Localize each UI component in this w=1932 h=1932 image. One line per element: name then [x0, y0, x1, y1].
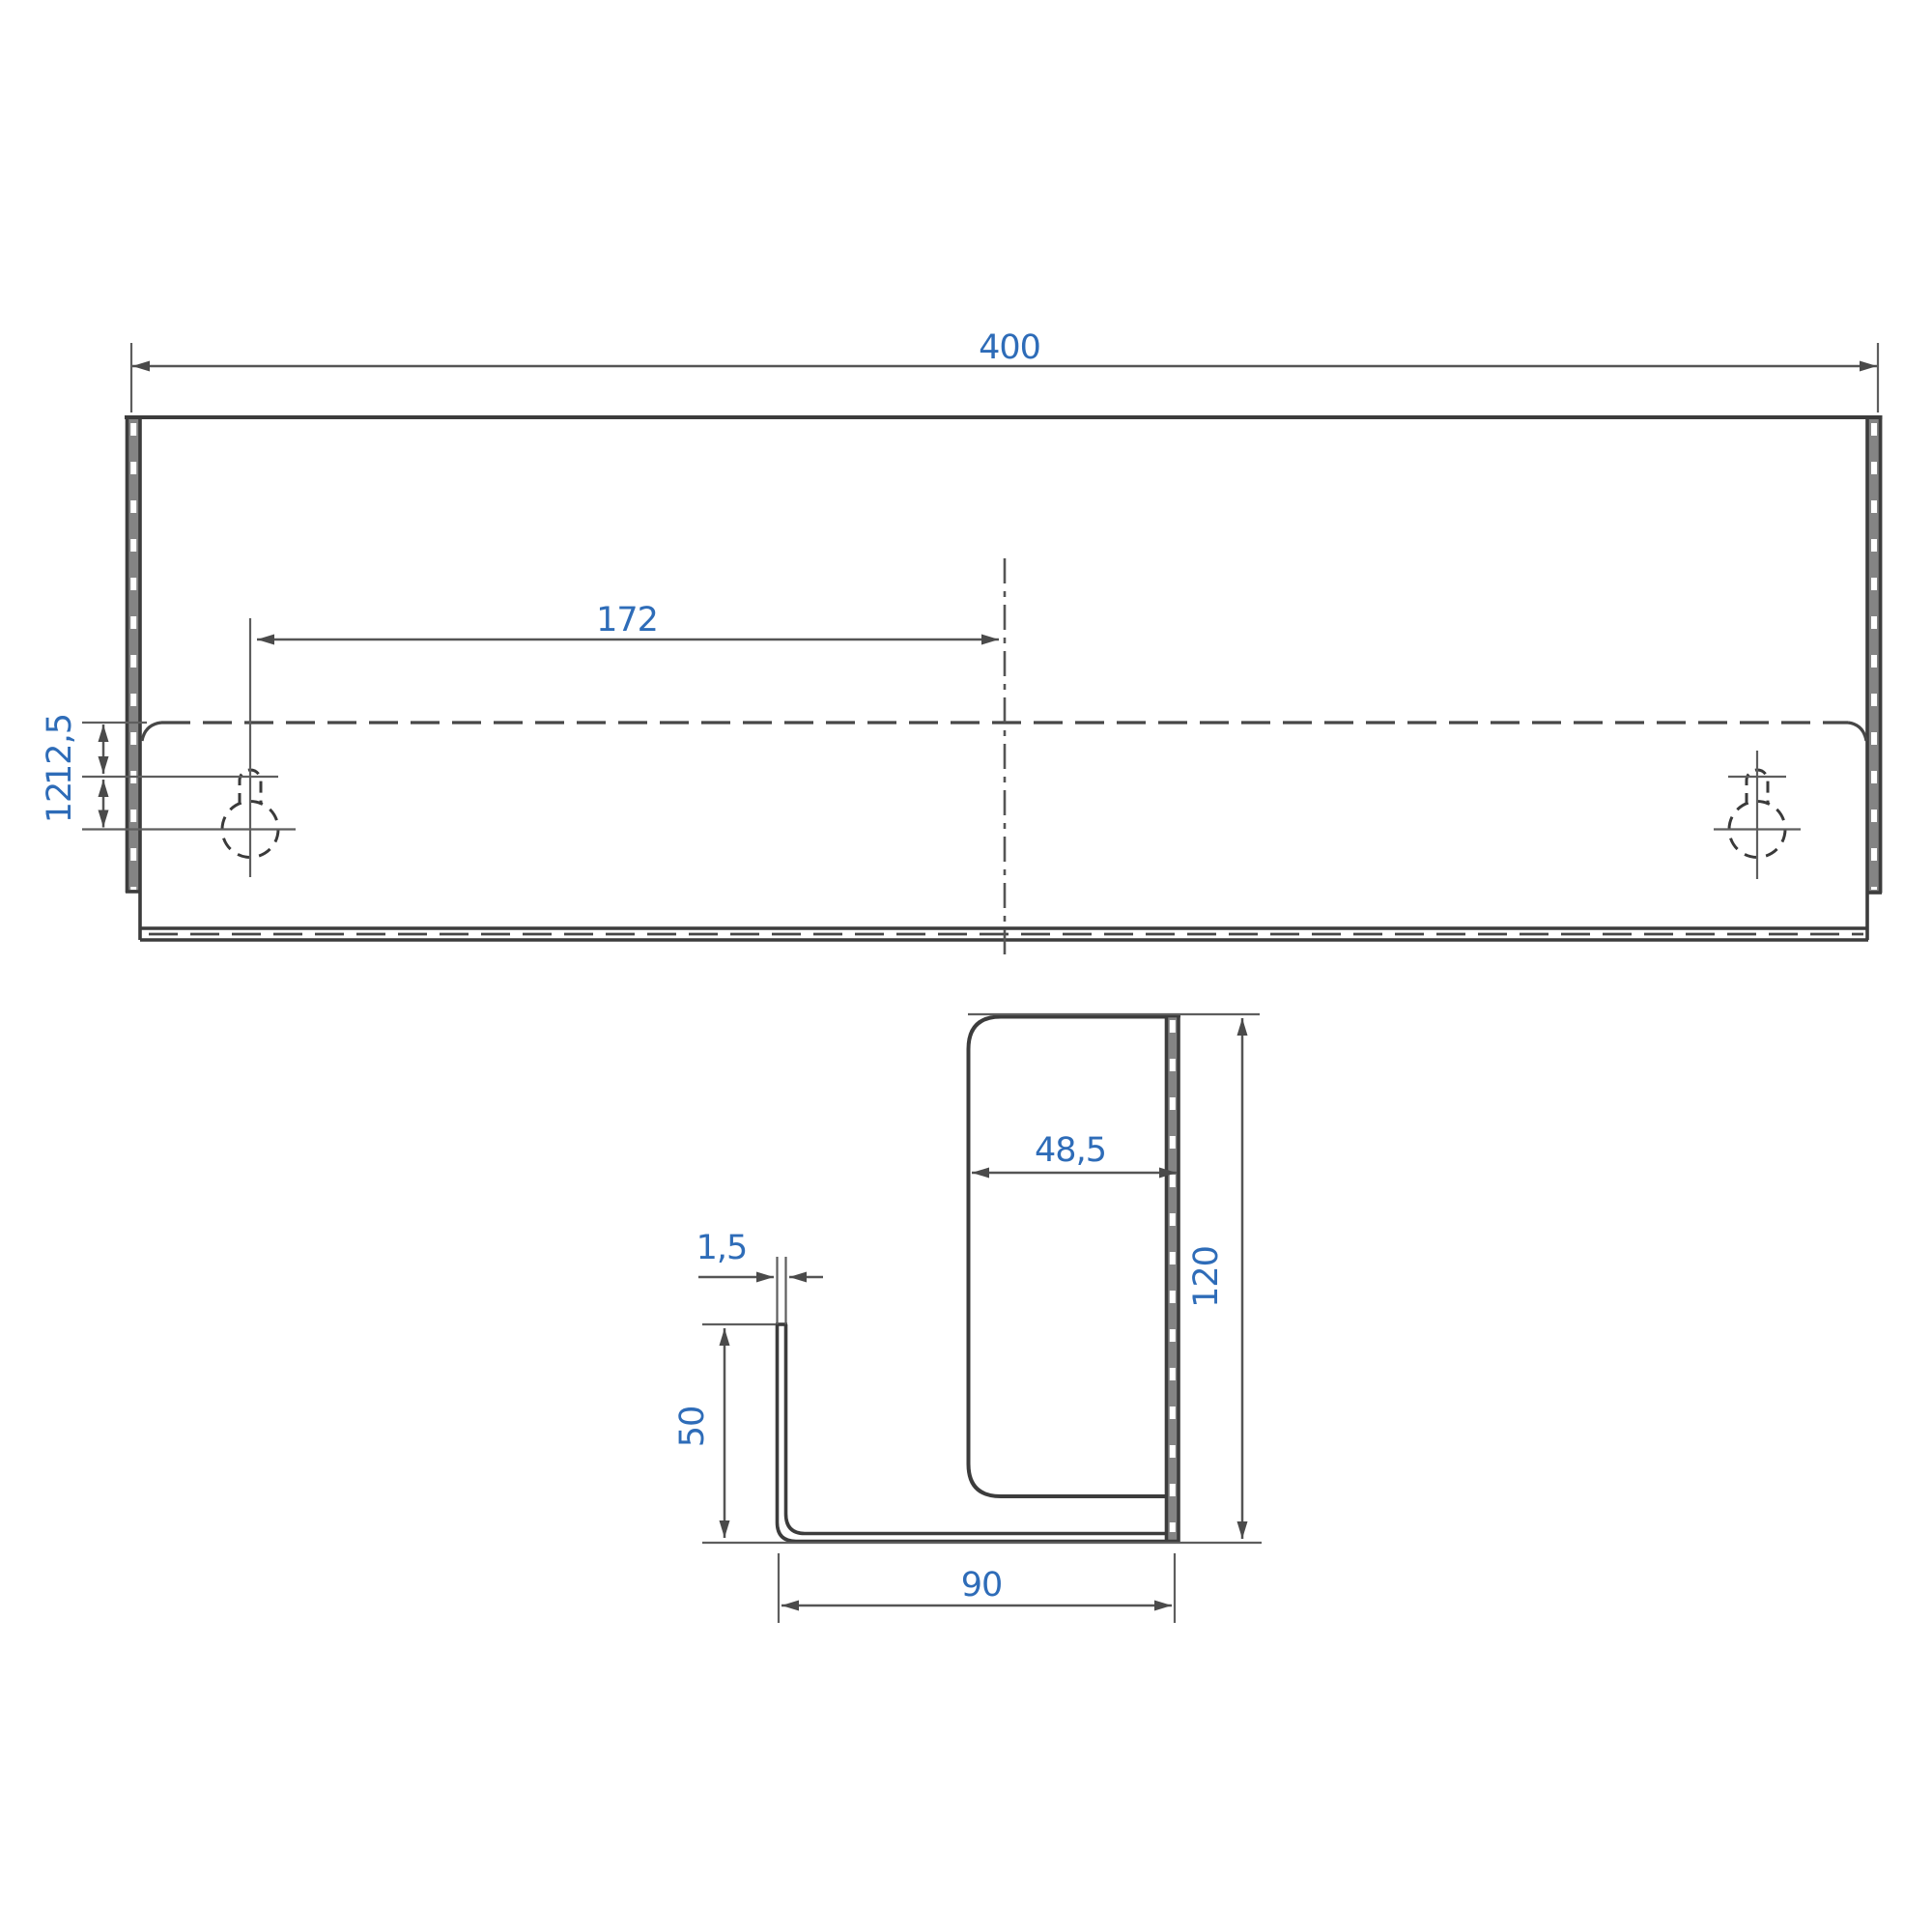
dim-overall-width: 400: [131, 328, 1878, 412]
section-view: 48,5 120 1,5 50 90: [673, 1014, 1262, 1623]
dim-label-overall-height: 120: [1187, 1246, 1226, 1308]
u-profile: [776, 1324, 1178, 1542]
dim-material-thickness: 1,5: [696, 1229, 823, 1324]
dim-label-material-thickness: 1,5: [696, 1229, 748, 1267]
drawing-canvas: 400 172 12,5 12: [0, 0, 1932, 1932]
dim-pocket-depth: 48,5: [972, 1131, 1177, 1173]
back-wall: [1165, 1014, 1180, 1542]
keyhole-right: [1714, 751, 1801, 879]
dim-label-pocket-depth: 48,5: [1035, 1131, 1106, 1170]
dim-label-overall-width: 400: [979, 328, 1040, 367]
dim-label-hole-to-centerline: 172: [596, 601, 658, 639]
right-edge-band: [1866, 417, 1883, 940]
keyhole-left: [82, 618, 296, 877]
pocket-profile: [969, 1017, 1166, 1497]
dim-hole-to-centerline: 172: [257, 601, 999, 639]
front-view: 400 172 12,5 12: [41, 328, 1883, 954]
dim-label-hole-center-offset: 12: [41, 782, 79, 824]
dim-label-front-height: 50: [673, 1406, 712, 1448]
dim-label-base-depth: 90: [961, 1566, 1003, 1605]
dim-front-height: 50: [673, 1324, 776, 1538]
technical-drawing: 400 172 12,5 12: [0, 0, 1932, 1932]
left-edge-band: [126, 417, 142, 940]
dim-base-depth: 90: [779, 1553, 1175, 1623]
dim-label-slot-top-offset: 12,5: [41, 714, 79, 785]
